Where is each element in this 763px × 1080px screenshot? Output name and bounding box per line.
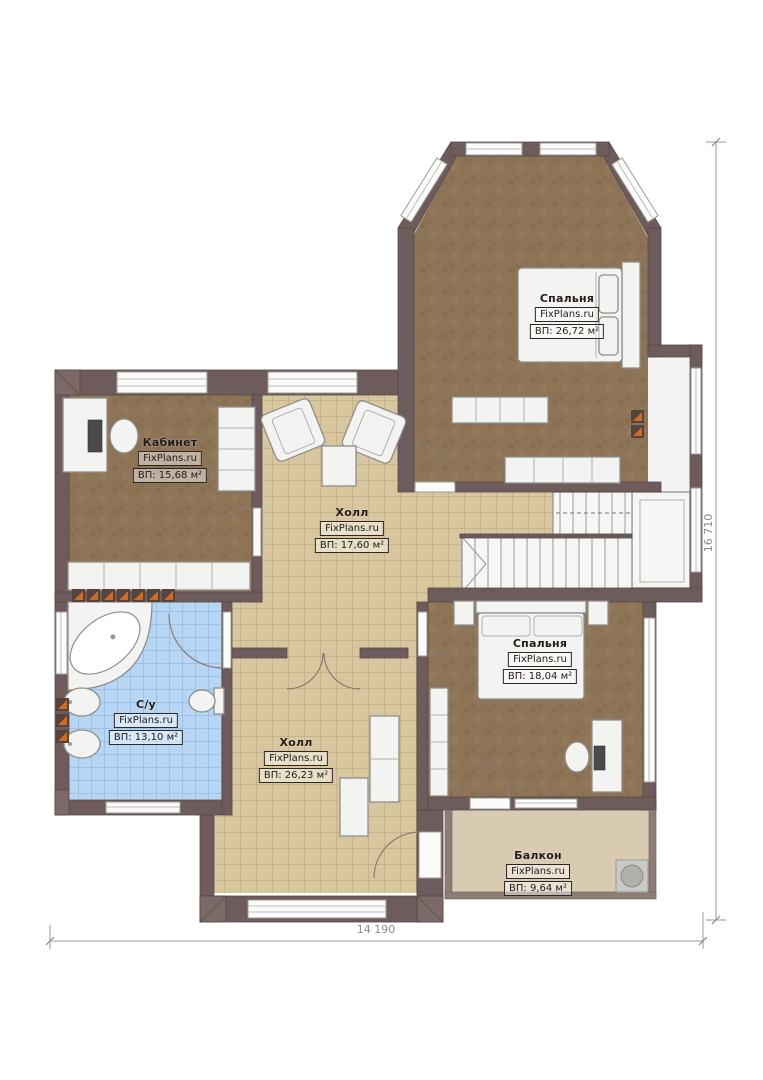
area-badge: ВП: 26,23 м² xyxy=(259,768,333,783)
wardrobe-right-bedroom xyxy=(430,688,448,796)
room-label-bedroom-top: Спальня FixPlans.ru ВП: 26,72 м² xyxy=(530,292,604,339)
bedroom-right-window-east xyxy=(644,618,655,782)
area-badge: ВП: 26,72 м² xyxy=(530,324,604,339)
room-name: Холл xyxy=(259,736,333,749)
area-badge: ВП: 17,60 м² xyxy=(315,538,389,553)
hall-upper-window xyxy=(268,372,357,393)
washbasin-1 xyxy=(64,688,100,716)
brand-badge: FixPlans.ru xyxy=(506,864,570,879)
room-label-balcony: Балкон FixPlans.ru ВП: 9,64 м² xyxy=(504,849,572,896)
room-label-office: Кабинет FixPlans.ru ВП: 15,68 м² xyxy=(133,436,207,483)
room-label-bathroom: С/у FixPlans.ru ВП: 13,10 м² xyxy=(109,698,183,745)
room-name: С/у xyxy=(109,698,183,711)
room-label-bedroom-right: Спальня FixPlans.ru ВП: 18,04 м² xyxy=(503,637,577,684)
toilet xyxy=(189,688,224,714)
brand-badge: FixPlans.ru xyxy=(535,307,599,322)
brand-badge: FixPlans.ru xyxy=(138,451,202,466)
bay-window-top-2 xyxy=(540,143,596,155)
dimension-right: 16 710 xyxy=(702,138,726,924)
balcony-wall-right xyxy=(649,810,656,898)
bathroom-window-bottom xyxy=(106,802,180,813)
room-name: Холл xyxy=(315,506,389,519)
hall-lower-floor-left xyxy=(213,815,232,893)
hall-lower-cabinet-a xyxy=(370,716,399,802)
room-name: Спальня xyxy=(530,292,604,305)
dimension-width-label: 14 190 xyxy=(357,923,396,936)
stair-bay-window-lower xyxy=(691,488,701,572)
bathroom-window-left xyxy=(56,612,67,674)
bay-window-top-1 xyxy=(466,143,522,155)
brand-badge: FixPlans.ru xyxy=(264,751,328,766)
office-cabinet-row xyxy=(68,562,250,590)
balcony-wall-left xyxy=(445,810,452,898)
room-name: Спальня xyxy=(503,637,577,650)
floor-plan-page: 14 190 16 710 Спальня FixPlans.ru ВП: 26… xyxy=(0,0,763,1080)
stair-bay-window-upper xyxy=(691,368,701,454)
bedroom-right-window-south xyxy=(515,799,577,808)
room-label-hall-lower: Холл FixPlans.ru ВП: 26,23 м² xyxy=(259,736,333,783)
stair-center-rail xyxy=(460,534,632,538)
dimension-height-label: 16 710 xyxy=(702,514,715,553)
hall-lower-cabinet-b xyxy=(340,778,368,836)
hall-lower-window xyxy=(248,900,386,918)
room-name: Кабинет xyxy=(133,436,207,449)
area-badge: ВП: 18,04 м² xyxy=(503,669,577,684)
area-badge: ВП: 15,68 м² xyxy=(133,468,207,483)
wardrobe-top-bedroom-b xyxy=(505,457,620,483)
office-window xyxy=(117,372,207,393)
wardrobe-top-bedroom-a xyxy=(452,397,548,423)
washbasin-2 xyxy=(64,730,100,758)
office-shelving xyxy=(218,407,255,491)
brand-badge: FixPlans.ru xyxy=(320,521,384,536)
room-name: Балкон xyxy=(504,849,572,862)
area-badge: ВП: 13,10 м² xyxy=(109,730,183,745)
area-badge: ВП: 9,64 м² xyxy=(504,881,572,896)
coffee-table xyxy=(322,446,356,486)
balcony-drain xyxy=(616,860,648,892)
stair-landing xyxy=(632,492,690,588)
room-label-hall-upper: Холл FixPlans.ru ВП: 17,60 м² xyxy=(315,506,389,553)
brand-badge: FixPlans.ru xyxy=(114,713,178,728)
brand-badge: FixPlans.ru xyxy=(508,652,572,667)
